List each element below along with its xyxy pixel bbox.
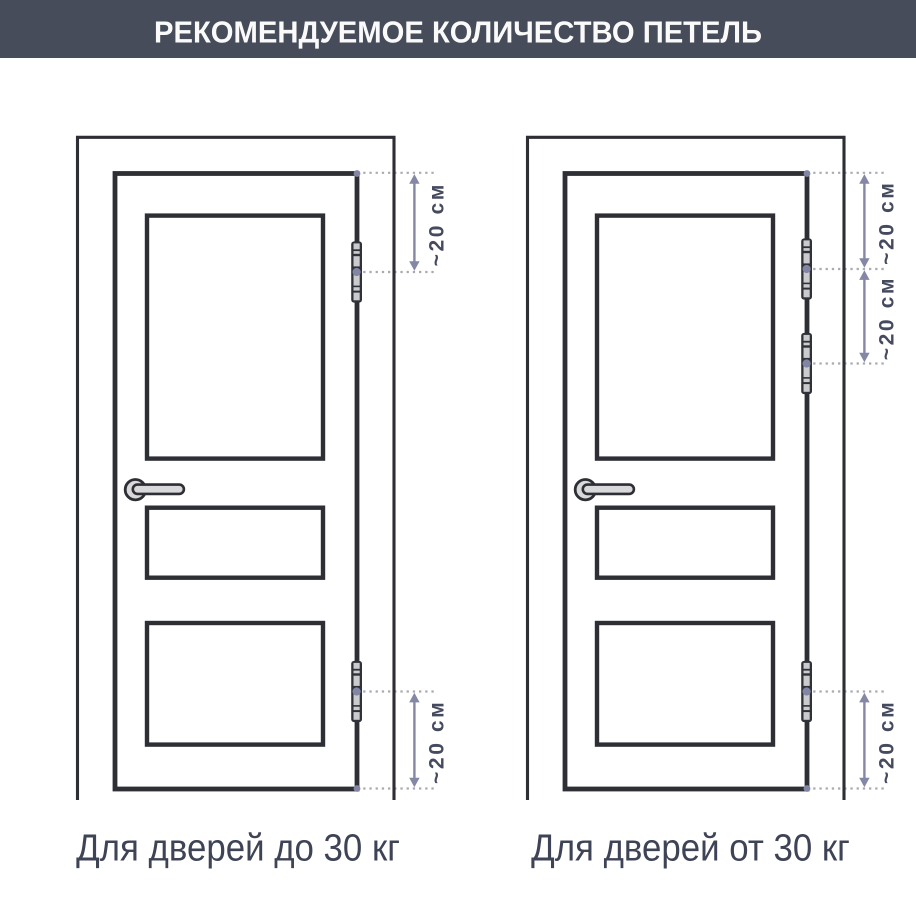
svg-text:Для дверей до 30 кг: Для дверей до 30 кг xyxy=(76,826,400,869)
svg-text:Для дверей от 30 кг: Для дверей от 30 кг xyxy=(531,826,850,869)
svg-text:РЕКОМЕНДУЕМОЕ КОЛИЧЕСТВО ПЕТЕЛ: РЕКОМЕНДУЕМОЕ КОЛИЧЕСТВО ПЕТЕЛЬ xyxy=(154,16,762,50)
svg-text:~20 см: ~20 см xyxy=(875,700,898,784)
svg-text:~20 см: ~20 см xyxy=(425,700,448,784)
svg-text:~20 см: ~20 см xyxy=(875,181,898,265)
svg-text:~20 см: ~20 см xyxy=(875,276,898,360)
svg-text:~20 см: ~20 см xyxy=(425,182,448,266)
